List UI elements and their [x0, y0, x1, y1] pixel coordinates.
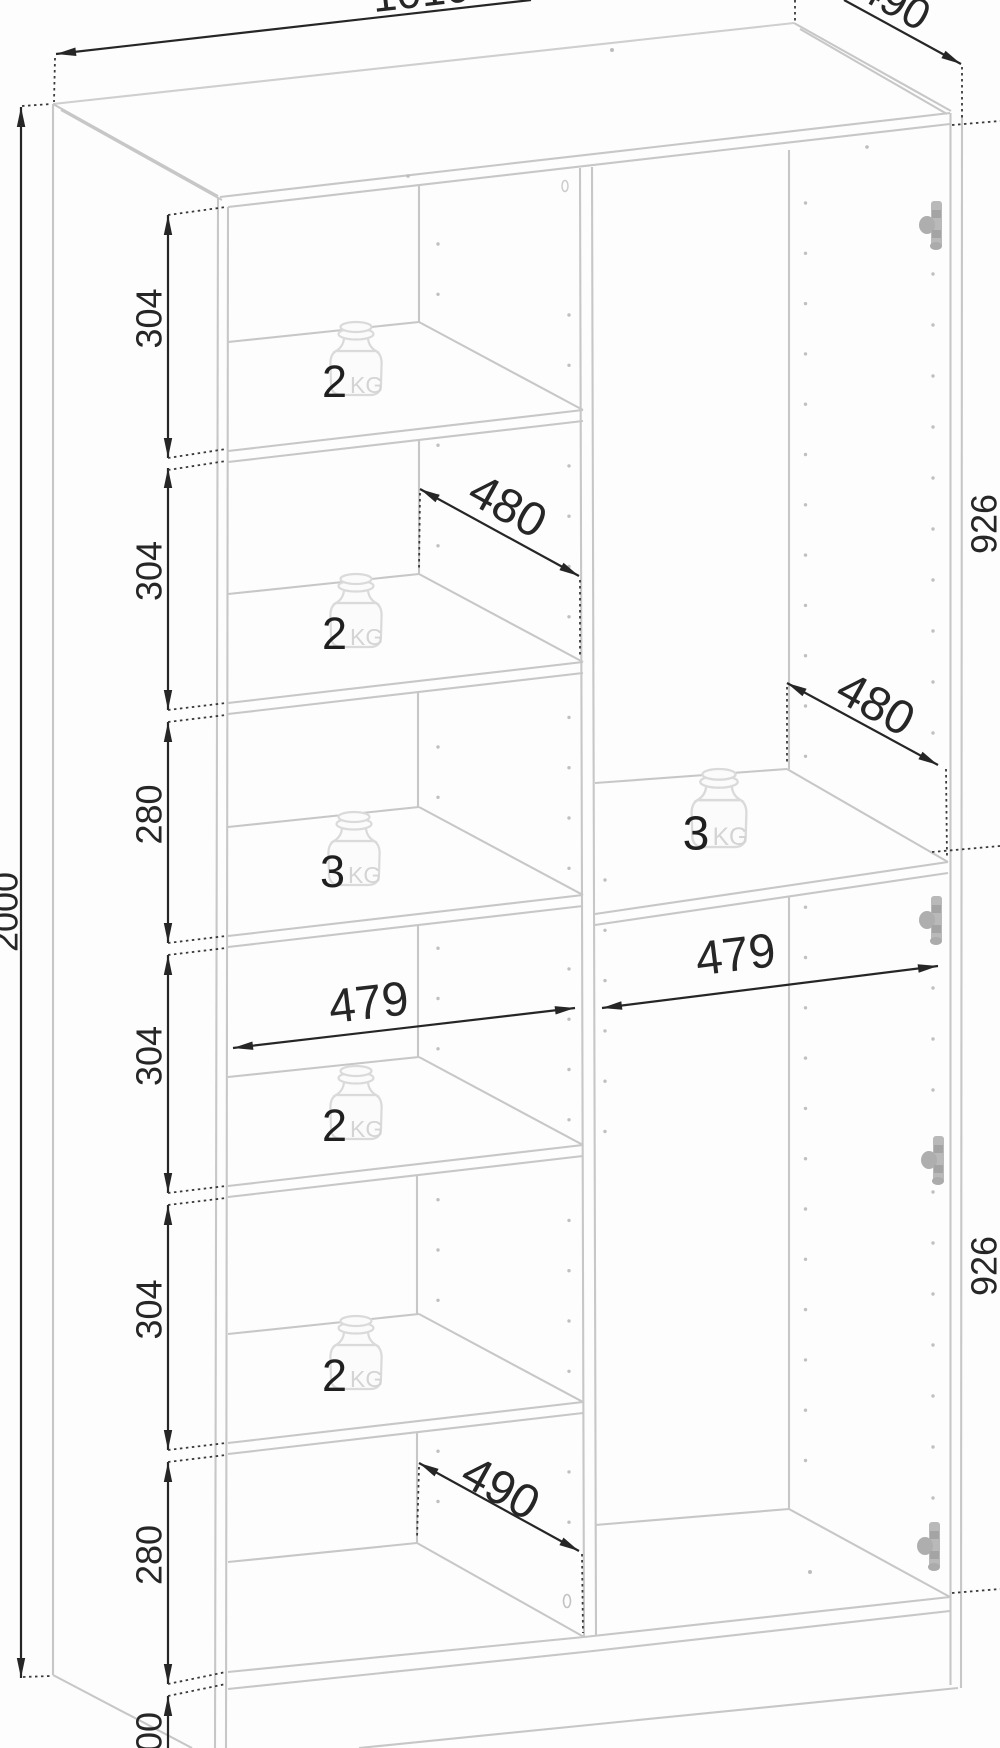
svg-text:280: 280 — [129, 784, 170, 844]
svg-text:2: 2 — [322, 608, 347, 659]
svg-text:304: 304 — [129, 288, 170, 348]
svg-text:926: 926 — [964, 494, 1000, 554]
svg-text:KG: KG — [350, 624, 383, 650]
svg-text:2: 2 — [322, 356, 347, 407]
svg-text:304: 304 — [129, 541, 170, 601]
svg-text:KG: KG — [350, 372, 383, 398]
svg-text:3: 3 — [683, 806, 710, 860]
svg-text:KG: KG — [713, 824, 749, 851]
svg-text:2000: 2000 — [0, 872, 26, 952]
svg-text:3: 3 — [320, 846, 345, 897]
svg-text:304: 304 — [129, 1026, 170, 1086]
svg-text:KG: KG — [350, 1116, 383, 1142]
svg-text:100: 100 — [129, 1712, 170, 1748]
svg-text:KG: KG — [350, 1366, 383, 1392]
svg-text:479: 479 — [693, 924, 779, 986]
svg-text:926: 926 — [964, 1236, 1000, 1296]
svg-text:2: 2 — [322, 1100, 347, 1151]
svg-text:479: 479 — [326, 972, 412, 1034]
svg-text:280: 280 — [129, 1525, 170, 1585]
svg-text:KG: KG — [348, 862, 381, 888]
svg-text:2: 2 — [322, 1350, 347, 1401]
svg-text:304: 304 — [129, 1279, 170, 1339]
